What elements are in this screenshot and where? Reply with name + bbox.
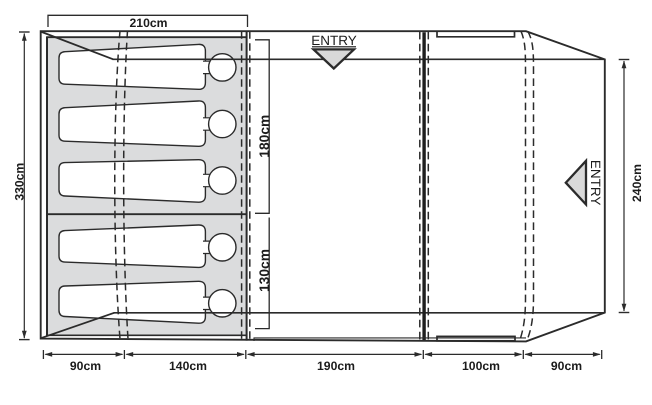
svg-text:190cm: 190cm	[317, 359, 355, 373]
svg-text:90cm: 90cm	[70, 359, 101, 373]
svg-text:130cm: 130cm	[257, 249, 272, 292]
svg-text:100cm: 100cm	[462, 359, 500, 373]
svg-text:240cm: 240cm	[630, 164, 644, 202]
svg-text:ENTRY: ENTRY	[588, 160, 603, 206]
svg-text:330cm: 330cm	[13, 163, 27, 201]
svg-text:90cm: 90cm	[551, 359, 582, 373]
svg-text:140cm: 140cm	[169, 359, 207, 373]
svg-text:180cm: 180cm	[257, 115, 272, 158]
svg-text:ENTRY: ENTRY	[311, 33, 357, 48]
svg-text:210cm: 210cm	[130, 16, 168, 30]
